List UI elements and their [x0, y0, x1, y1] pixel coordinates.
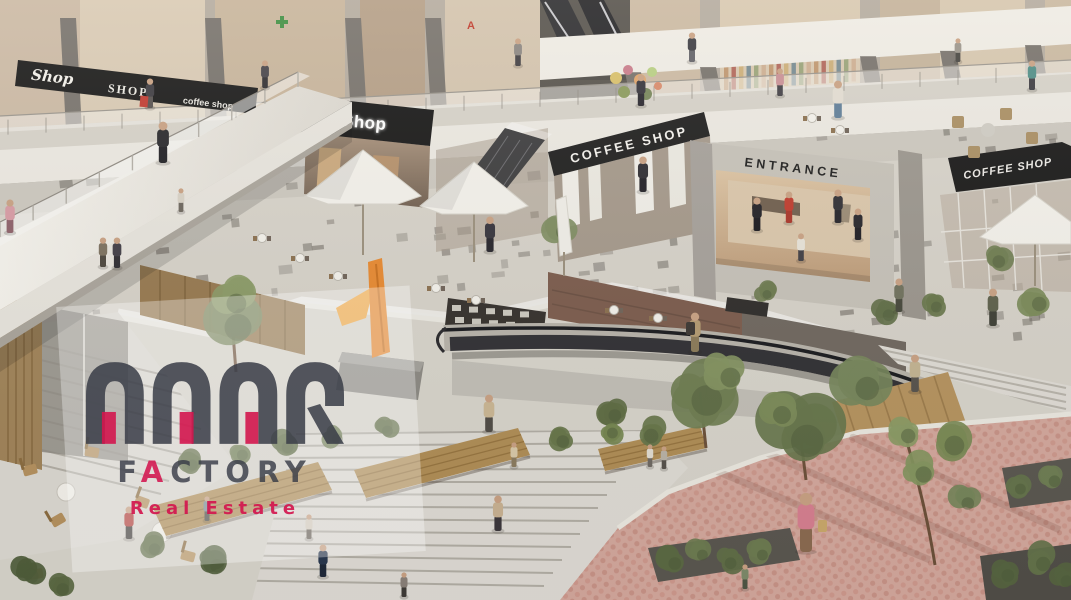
mall-3d-render: A COFFEE SHOP [0, 0, 1071, 600]
light-overlay [0, 0, 1071, 600]
scene-canvas: A COFFEE SHOP [0, 0, 1071, 600]
